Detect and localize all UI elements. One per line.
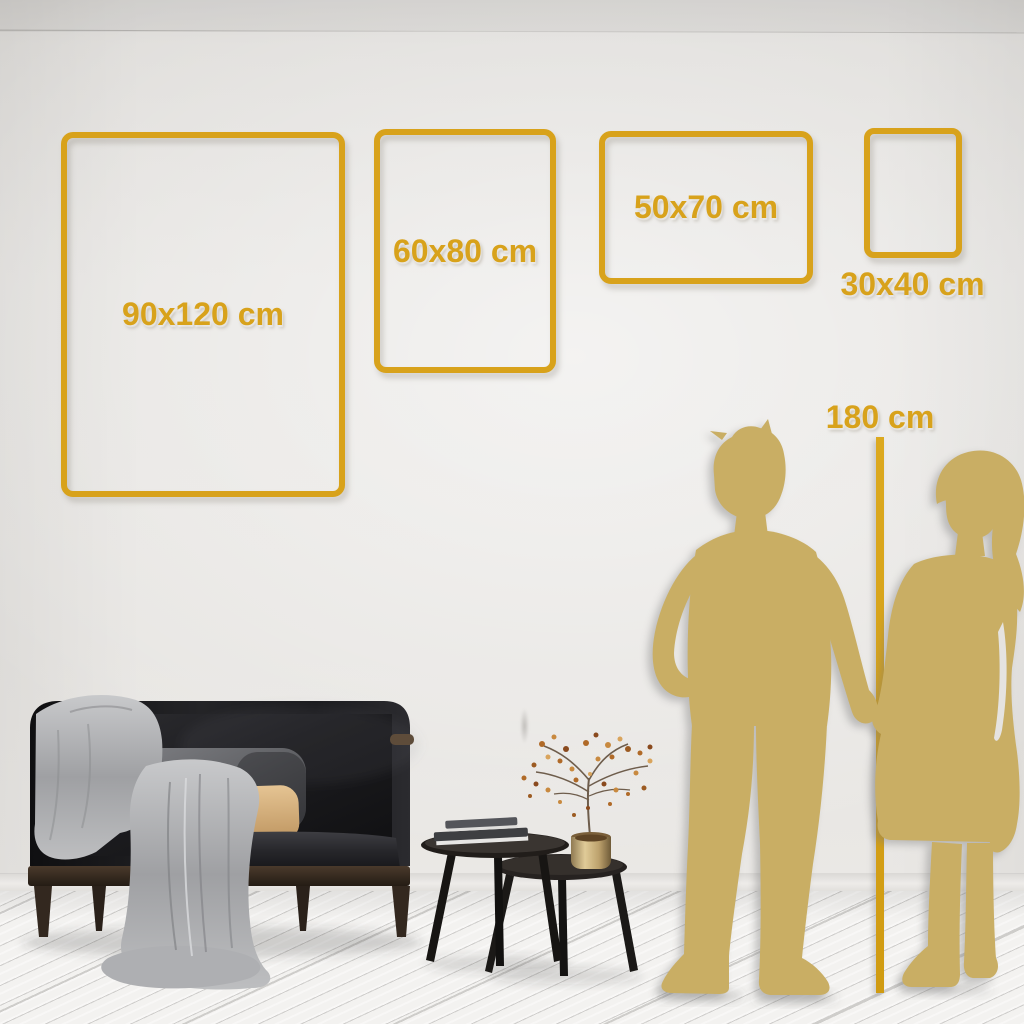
man-silhouette [653,419,878,995]
couple-silhouette [0,0,1024,1024]
poster-size-guide-mockup: 90x120 cm 60x80 cm 50x70 cm 30x40 cm 180… [0,0,1024,1024]
